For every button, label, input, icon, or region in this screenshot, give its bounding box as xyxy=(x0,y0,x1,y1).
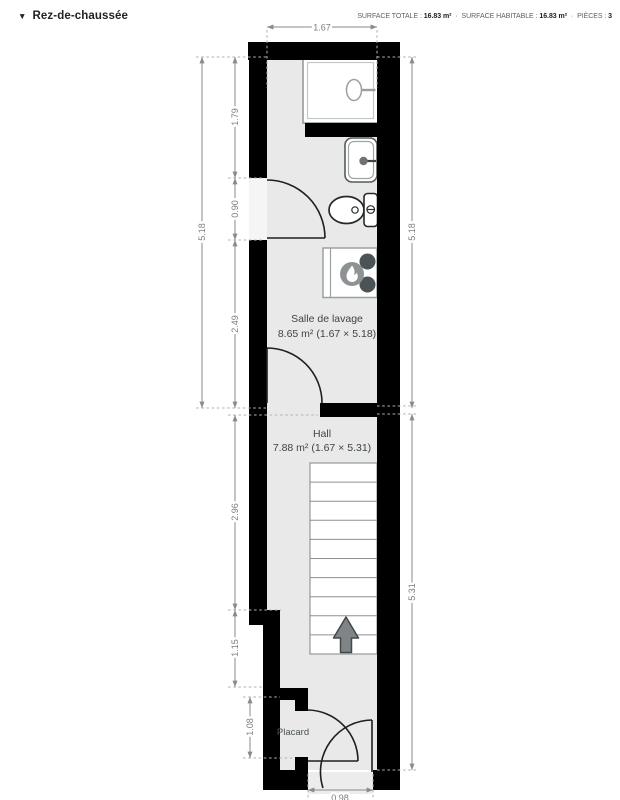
wall-left-mid xyxy=(249,240,267,610)
svg-text:2.49: 2.49 xyxy=(230,315,240,333)
wall-left-lower xyxy=(263,625,280,790)
knob-icon xyxy=(360,254,376,270)
closet-room-name: Placard xyxy=(277,727,309,738)
wall-laundry-hall xyxy=(320,403,400,417)
dim-top-width: 1.67 xyxy=(267,23,377,33)
floor-plan-canvas: 1.67 5.18 1.79 0.90 2.49 2.96 1.15 1.08 xyxy=(0,0,620,800)
shower-icon xyxy=(303,58,378,123)
svg-text:1.67: 1.67 xyxy=(313,23,331,33)
laundry-room-area: 8.65 m² (1.67 × 5.18) xyxy=(278,328,376,340)
laundry-room-name: Salle de lavage xyxy=(291,313,363,325)
water-heater-icon xyxy=(323,248,377,298)
wall-closet-stub-bottom xyxy=(295,757,308,772)
wall-closet-stub-top xyxy=(295,700,308,711)
dim-hall-lower: 1.15 xyxy=(230,610,240,687)
svg-text:5.31: 5.31 xyxy=(407,583,417,601)
wall-bottom-right xyxy=(373,770,400,790)
svg-text:1.08: 1.08 xyxy=(245,718,255,736)
svg-text:1.15: 1.15 xyxy=(230,639,240,657)
wall-shower-ledge xyxy=(305,123,400,137)
svg-text:0.98: 0.98 xyxy=(331,793,349,800)
dim-right-hall: 5.31 xyxy=(407,414,417,770)
hall-room-area: 7.88 m² (1.67 × 5.31) xyxy=(273,442,371,454)
dim-laundry-top: 1.79 xyxy=(230,57,240,178)
dim-laundry-bottom: 2.49 xyxy=(230,240,240,408)
wall-bottom-left xyxy=(263,770,308,790)
dim-laundry-door: 0.90 xyxy=(230,178,240,240)
dim-closet-height: 1.08 xyxy=(245,697,255,758)
svg-text:5.18: 5.18 xyxy=(407,223,417,241)
dim-right-laundry: 5.18 xyxy=(407,57,417,408)
entrance-threshold xyxy=(308,772,373,794)
hall-room-name: Hall xyxy=(313,428,331,440)
svg-text:5.18: 5.18 xyxy=(197,223,207,241)
dim-left-total: 5.18 xyxy=(197,57,207,408)
wall-left-upper xyxy=(249,60,267,178)
wall-closet-top xyxy=(263,688,308,700)
svg-text:0.90: 0.90 xyxy=(230,200,240,218)
dim-hall-upper: 2.96 xyxy=(230,415,240,610)
svg-text:2.96: 2.96 xyxy=(230,503,240,521)
sink-icon xyxy=(345,138,377,182)
toilet-icon xyxy=(329,194,378,227)
svg-text:1.79: 1.79 xyxy=(230,108,240,126)
wall-left-jog xyxy=(249,610,280,625)
side-door-opening xyxy=(249,178,267,240)
staircase xyxy=(310,463,377,654)
